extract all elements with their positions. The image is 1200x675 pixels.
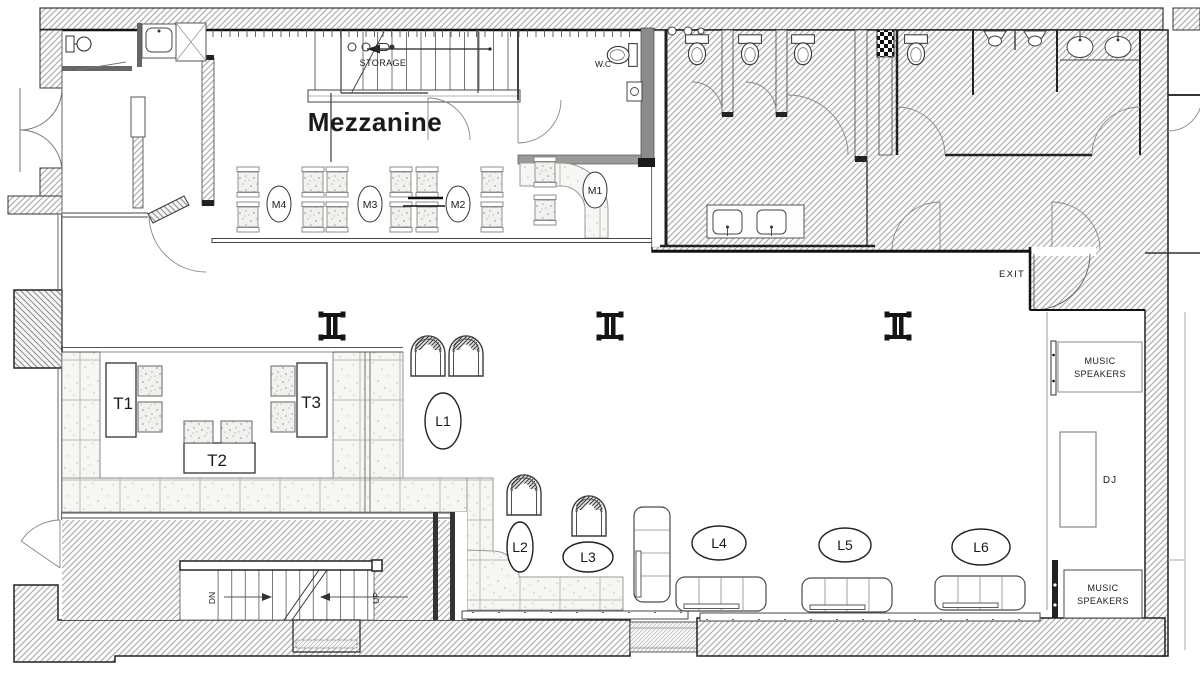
- door-swing: [1168, 97, 1200, 131]
- wc-bowl: [77, 37, 91, 51]
- column-icon: [597, 312, 624, 341]
- music-speakers-top-box: [1058, 342, 1142, 392]
- stair-up-label: UP: [371, 592, 381, 604]
- lounge-tag-L4: L4: [711, 535, 727, 551]
- wc-cistern: [66, 36, 74, 52]
- structural-columns: [319, 312, 912, 341]
- chair: [138, 366, 162, 396]
- chair: [271, 402, 295, 432]
- music-speakers-bottom-box: [1064, 570, 1142, 618]
- floor-plan: Mezzanine STORAGE W.C EXIT DJ MUSIC SPEA…: [0, 0, 1200, 675]
- toilet-icon: [607, 44, 637, 67]
- mezzanine-railing: [212, 238, 652, 243]
- table-tag-T1: T1: [113, 394, 133, 413]
- stair-treads: [213, 570, 374, 620]
- table-tag-M3: M3: [363, 199, 378, 211]
- chair: [184, 421, 213, 443]
- tub-chair: [449, 336, 483, 376]
- mezzanine-bathroom: [62, 23, 214, 345]
- entry-threshold: [630, 622, 697, 652]
- sofa: [935, 576, 1025, 610]
- music-speakers-bottom-line2: SPEAKERS: [1077, 596, 1129, 606]
- mezzanine-stair: [205, 30, 633, 102]
- lounge-tag-L3: L3: [580, 549, 596, 565]
- dj-label: DJ: [1103, 475, 1117, 486]
- dj-booth: [1060, 432, 1096, 527]
- wc-label: W.C: [595, 59, 611, 69]
- chair: [271, 366, 295, 396]
- sofa: [676, 577, 766, 611]
- table-tag-M4: M4: [272, 199, 287, 211]
- chair: [221, 421, 252, 443]
- chair: [138, 402, 162, 432]
- column-icon: [885, 312, 912, 341]
- floor-plan-drawing: Mezzanine STORAGE W.C EXIT DJ MUSIC SPEA…: [0, 0, 1200, 675]
- exit-label: EXIT: [999, 269, 1025, 280]
- lounge-tag-L2: L2: [512, 539, 528, 555]
- door-leaf: [148, 196, 189, 223]
- door-leaf: [131, 97, 145, 137]
- table-tag-T3: T3: [301, 393, 321, 412]
- table-tag-T2: T2: [207, 451, 227, 470]
- tub-chair: [411, 336, 445, 376]
- door-swing: [149, 215, 206, 272]
- lounge-tag-L5: L5: [837, 537, 853, 553]
- coat-hook: [348, 43, 356, 51]
- sofa: [802, 578, 892, 612]
- table-tag-M1: M1: [588, 185, 603, 197]
- entrance-doors: [20, 88, 62, 172]
- table-tag-M2: M2: [451, 199, 466, 211]
- column-icon: [319, 312, 346, 341]
- tub-chair: [572, 496, 606, 536]
- pier: [14, 290, 62, 368]
- music-speakers-top-line1: MUSIC: [1085, 356, 1116, 366]
- door-swing: [21, 520, 60, 568]
- door-swing: [518, 100, 561, 143]
- mezzanine-title: Mezzanine: [308, 107, 443, 137]
- duct-shaft: [877, 30, 894, 57]
- hand-basin: [627, 82, 642, 101]
- lounge-tag-L1: L1: [435, 413, 451, 429]
- music-speakers-top-line2: SPEAKERS: [1074, 369, 1126, 379]
- stair-dn-label: DN: [207, 592, 217, 604]
- storage-label: STORAGE: [360, 58, 407, 68]
- stair-rail: [180, 561, 374, 570]
- tub-chair: [507, 475, 541, 515]
- music-speakers-bottom-line1: MUSIC: [1088, 583, 1119, 593]
- bench-ledges: [462, 611, 1040, 621]
- lounge-tag-L6: L6: [973, 539, 989, 555]
